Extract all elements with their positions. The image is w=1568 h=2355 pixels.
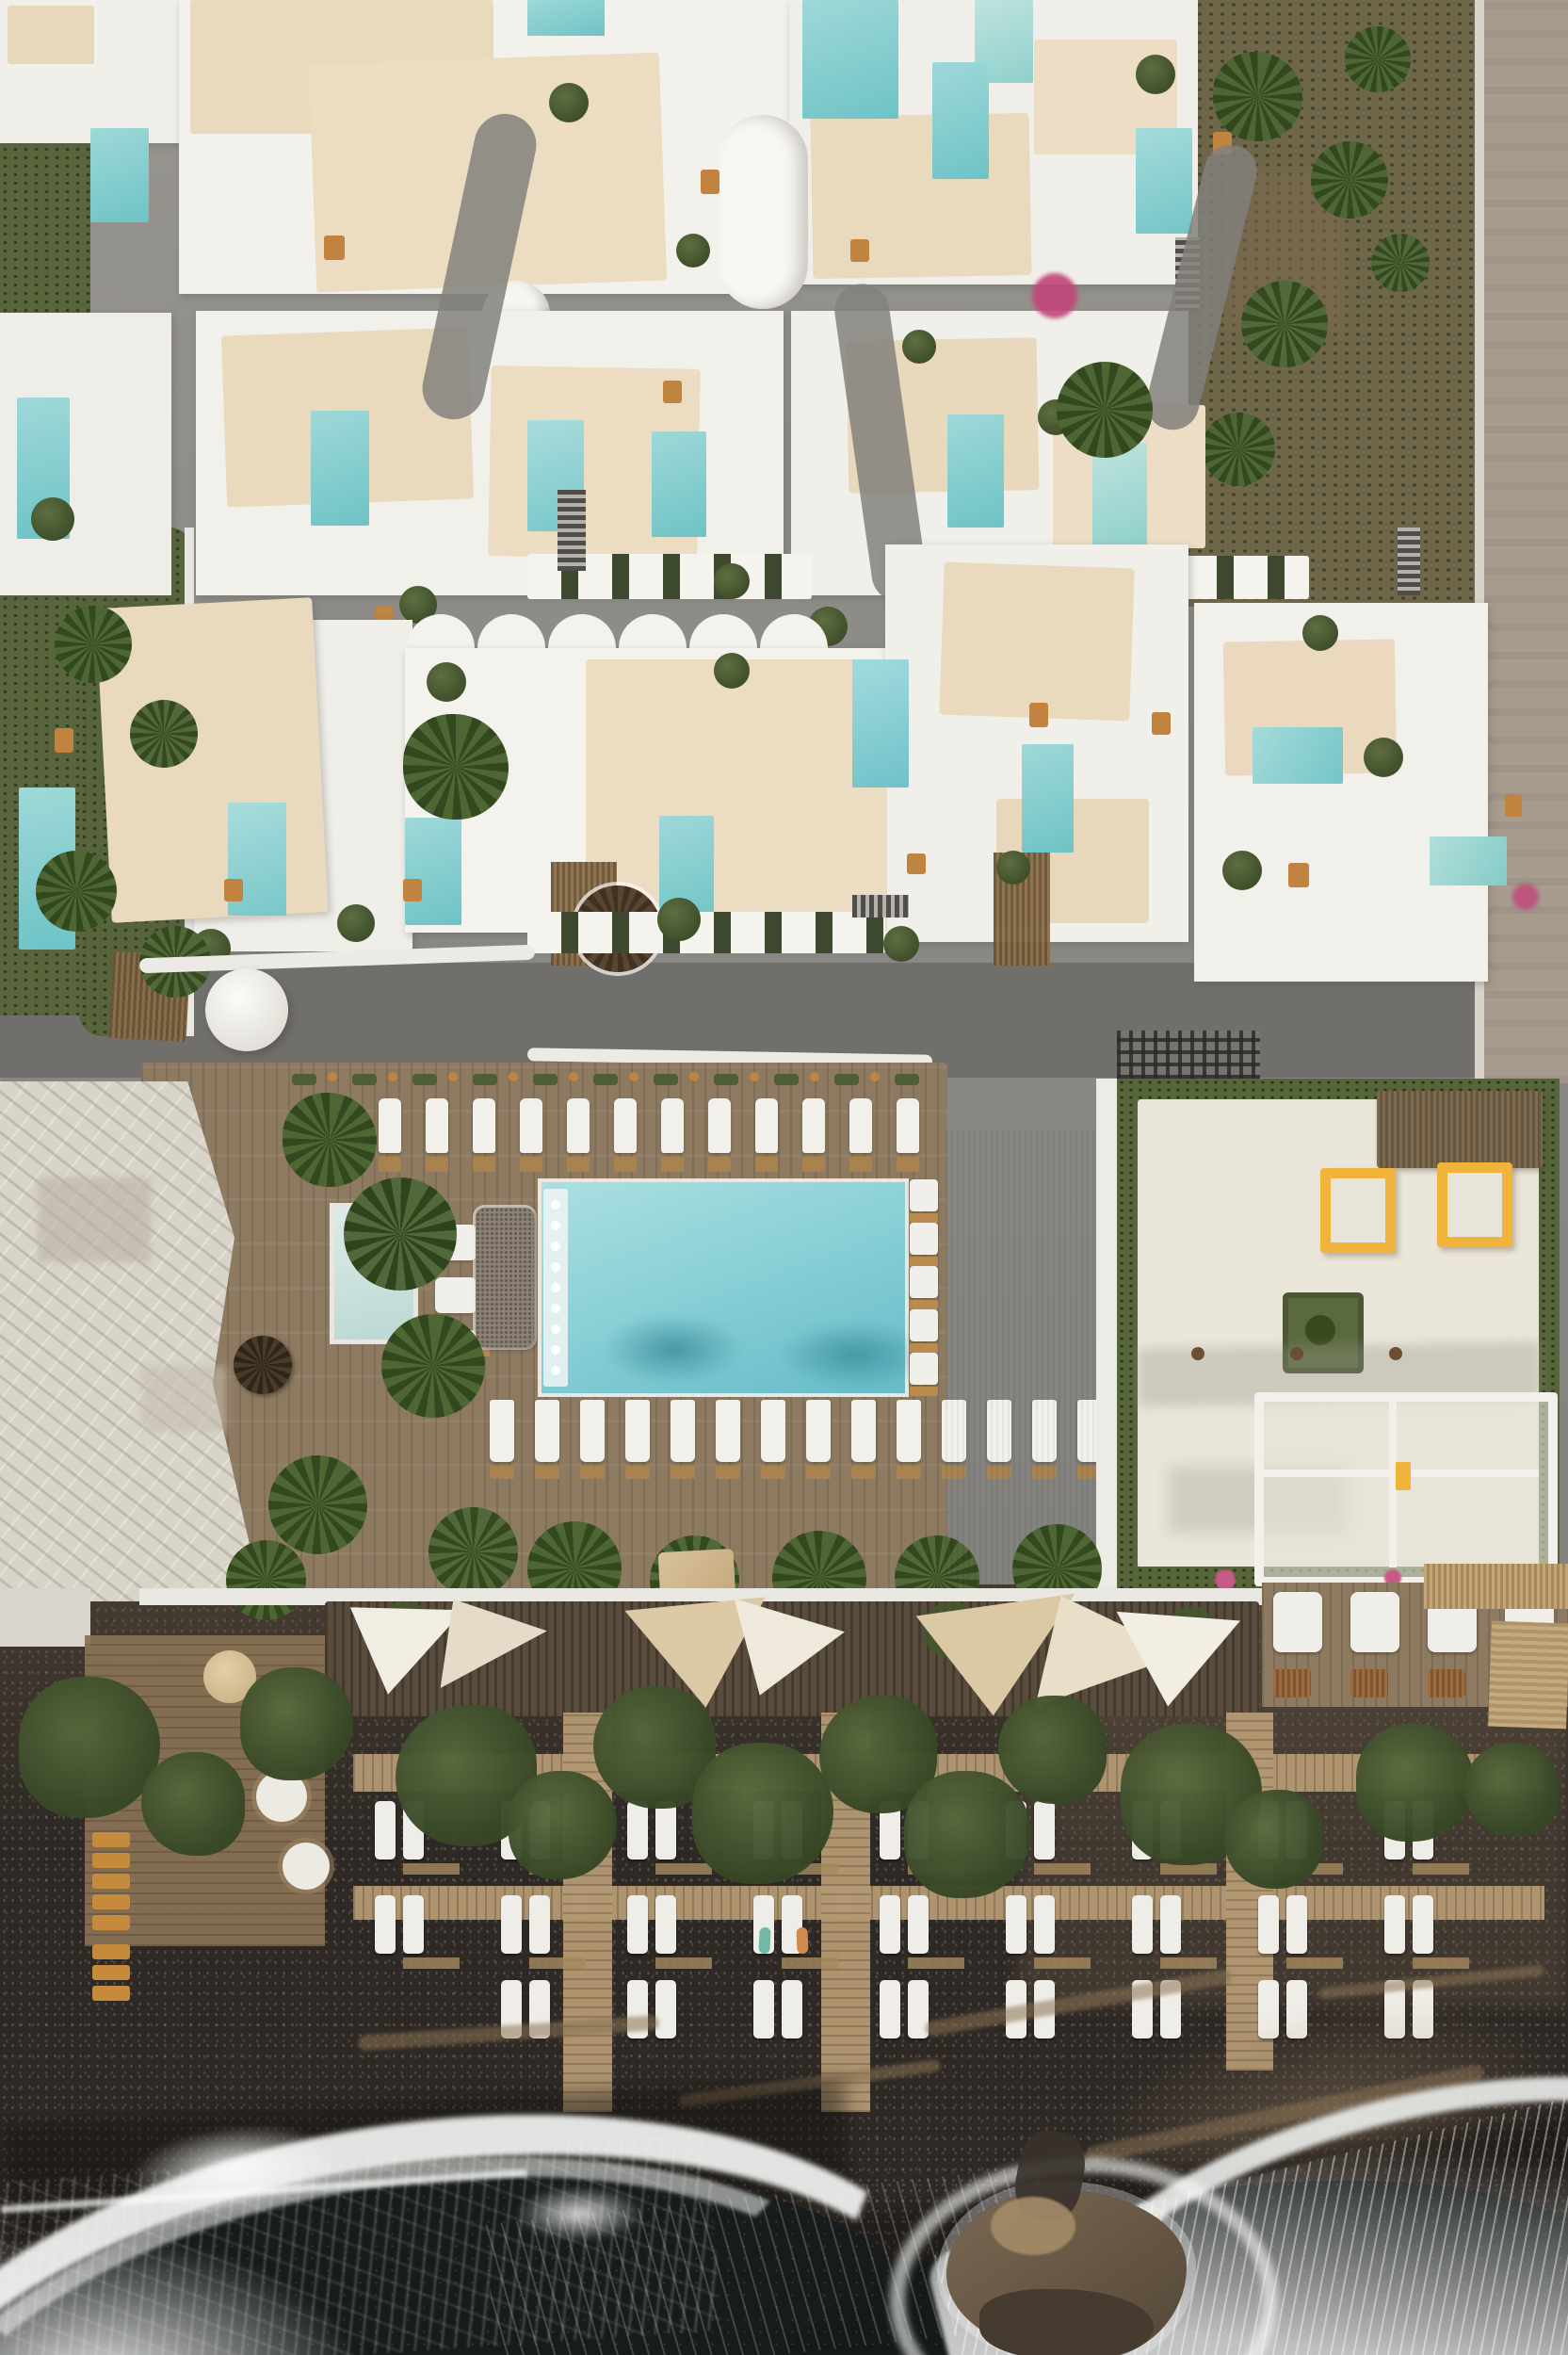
- palm-tree: [403, 714, 509, 820]
- plunge-pool: [1022, 744, 1074, 853]
- garden-palm: [1371, 234, 1430, 292]
- lounger-wood: [567, 1157, 590, 1172]
- plunge-pool: [932, 62, 989, 179]
- lounger-wood: [849, 1157, 872, 1172]
- pool-lounger-top: [473, 1098, 495, 1153]
- stairs: [1398, 528, 1420, 595]
- orange-lounger: [92, 1915, 130, 1930]
- lounger-divider: [655, 1863, 712, 1875]
- planter-row: [352, 1074, 377, 1085]
- plunge-pool: [405, 818, 461, 925]
- arcade: [527, 912, 885, 953]
- pool-lounger-top: [614, 1098, 637, 1153]
- planter-row: [473, 1074, 497, 1085]
- wood-accent: [55, 728, 73, 753]
- planter-row: [654, 1074, 678, 1085]
- planter-dot: [629, 1072, 639, 1081]
- beach-daybed: [1350, 1592, 1399, 1652]
- beach-lounger: [1006, 1895, 1026, 1954]
- lounger-wood: [851, 1466, 876, 1479]
- wicker-square: [1428, 1669, 1465, 1697]
- planter-dot: [328, 1072, 337, 1081]
- planter-row: [593, 1074, 618, 1085]
- terrace-pot: [1191, 1347, 1204, 1360]
- planter-row: [895, 1074, 919, 1085]
- garden-palm: [1241, 281, 1328, 367]
- planter-dot: [870, 1072, 880, 1081]
- lounger-wood: [520, 1157, 542, 1172]
- lounger-wood: [379, 1157, 401, 1172]
- foam-breaker-mid: [513, 2185, 645, 2242]
- beach-tree: [1464, 1743, 1559, 1837]
- daybed: [435, 1277, 477, 1313]
- deck-palm: [381, 1314, 485, 1418]
- wood-accent: [850, 239, 869, 262]
- pool-step-dot: [551, 1324, 560, 1334]
- lounger-wood: [802, 1157, 825, 1172]
- plunge-pool: [1092, 443, 1147, 546]
- lounger-divider: [1034, 1863, 1091, 1875]
- pool-lounger-top: [897, 1098, 919, 1153]
- lounger-wood: [755, 1157, 778, 1172]
- left-white-structure: [0, 1588, 90, 1647]
- shrub: [714, 653, 750, 689]
- lounger-wood: [473, 1157, 495, 1172]
- pool-lounger-right: [910, 1353, 938, 1385]
- pool-lounger-top: [520, 1098, 542, 1153]
- roof-stain: [38, 1177, 151, 1262]
- orange-lounger: [92, 1874, 130, 1889]
- pool-step-dot: [551, 1304, 560, 1313]
- lounger-wood: [614, 1157, 637, 1172]
- orange-lounger: [92, 1832, 130, 1847]
- wood-accent: [1029, 703, 1048, 727]
- beach-lounger: [880, 1895, 900, 1954]
- plunge-pool: [90, 128, 149, 222]
- wood-accent: [1505, 794, 1522, 817]
- wicker-square: [1273, 1669, 1311, 1697]
- plunge-pool: [1430, 836, 1507, 885]
- lounger-divider: [1413, 1863, 1469, 1875]
- lounger-divider: [403, 1863, 460, 1875]
- beach-lounger: [1384, 1895, 1405, 1954]
- pool-lounger-bottom: [716, 1400, 740, 1462]
- terrace-pot: [1389, 1347, 1402, 1360]
- stairs: [852, 895, 909, 918]
- pool-lounger-bottom: [580, 1400, 605, 1462]
- shrub: [31, 497, 74, 541]
- pool-lounger-right: [910, 1179, 938, 1211]
- stairs: [558, 490, 586, 571]
- thatch-strip: [1424, 1564, 1568, 1609]
- skylight-yellow: [1320, 1168, 1396, 1253]
- pool-lounger-bottom: [806, 1400, 831, 1462]
- road-right: [1484, 0, 1568, 1083]
- lounger-divider: [1160, 1957, 1217, 1969]
- rock-cap: [991, 2197, 1075, 2255]
- pool-lounger-bottom: [761, 1400, 785, 1462]
- planter-row: [714, 1074, 738, 1085]
- plunge-pool: [947, 414, 1004, 528]
- wood-accent: [324, 235, 345, 260]
- pool-lounger-bottom: [625, 1400, 650, 1462]
- wicker-square: [1350, 1669, 1388, 1697]
- planter-dot: [388, 1072, 397, 1081]
- lounger-wood: [897, 1466, 921, 1479]
- plunge-pool: [311, 411, 369, 526]
- lounger-wood: [910, 1213, 938, 1223]
- wood-accent: [907, 853, 926, 874]
- plunge-pool: [852, 659, 909, 788]
- pool-lounger-bottom: [897, 1400, 921, 1462]
- plunge-pool: [802, 0, 898, 119]
- planter-row: [774, 1074, 799, 1085]
- beach-tree: [141, 1752, 245, 1856]
- beach-lounger: [1286, 1895, 1307, 1954]
- wood-accent: [1288, 863, 1309, 887]
- lounger-wood: [661, 1157, 684, 1172]
- plunge-pool: [527, 0, 605, 36]
- pool-lounger-top: [379, 1098, 401, 1153]
- yellow-box: [1396, 1462, 1411, 1490]
- beach-lounger: [1413, 1895, 1433, 1954]
- lounger-wood: [761, 1466, 785, 1479]
- beach-lounger: [375, 1801, 396, 1860]
- pool-step-dot: [551, 1345, 560, 1355]
- planter-dot: [569, 1072, 578, 1081]
- pool-lounger-bottom: [490, 1400, 514, 1462]
- lounger-divider: [529, 1957, 586, 1969]
- shrub: [714, 563, 750, 599]
- shrub: [427, 662, 466, 702]
- person-towel-teal: [758, 1927, 770, 1955]
- roof-stain: [141, 1366, 226, 1432]
- beach-lounger: [501, 1895, 522, 1954]
- beach-lounger: [403, 1895, 424, 1954]
- pool-palm-shadow: [603, 1314, 744, 1385]
- pool-lounger-top: [755, 1098, 778, 1153]
- deck-umbrella-dark: [234, 1336, 292, 1394]
- pool-lounger-top: [849, 1098, 872, 1153]
- garden-palm: [1202, 413, 1275, 486]
- lounger-wood: [580, 1466, 605, 1479]
- pool-step-dot: [551, 1262, 560, 1272]
- shrub: [676, 234, 710, 268]
- orange-lounger: [92, 1965, 130, 1980]
- shrub: [1136, 55, 1175, 94]
- planter-row: [412, 1074, 437, 1085]
- pool-lounger-bottom: [851, 1400, 876, 1462]
- beach-lounger: [655, 1801, 676, 1860]
- terrace-planter-bush: [1305, 1315, 1335, 1345]
- lounger-divider: [1034, 1957, 1091, 1969]
- beach-lounger: [1132, 1895, 1153, 1954]
- beach-lounger: [627, 1801, 648, 1860]
- pool-lounger-right: [910, 1266, 938, 1298]
- beach-lounger: [1160, 1895, 1181, 1954]
- deck-palm: [344, 1177, 457, 1291]
- lounger-wood: [910, 1387, 938, 1396]
- orange-lounger: [92, 1853, 130, 1868]
- lounger-wood: [426, 1157, 448, 1172]
- deck-palm: [268, 1455, 367, 1554]
- beach-lounger: [908, 1895, 929, 1954]
- shrub: [1302, 615, 1338, 651]
- terrace-hedge: [1117, 1079, 1138, 1589]
- pool-step-dot: [551, 1283, 560, 1292]
- beach-lounger: [375, 1895, 396, 1954]
- plunge-pool: [1136, 128, 1192, 234]
- lounger-wood: [910, 1300, 938, 1309]
- beach-lounger: [1034, 1895, 1055, 1954]
- roof-beige: [939, 562, 1135, 722]
- deck-palm: [428, 1507, 518, 1597]
- umbrella-dome-white: [205, 968, 288, 1051]
- plunge-pool: [1253, 727, 1343, 784]
- wood-accent: [224, 879, 243, 901]
- lounger-wood: [490, 1466, 514, 1479]
- shrub: [883, 926, 919, 962]
- garden-palm: [1345, 26, 1411, 92]
- shrub: [996, 851, 1030, 885]
- planter-dot: [810, 1072, 819, 1081]
- lounger-wood: [625, 1466, 650, 1479]
- beach-lounger: [1034, 1801, 1055, 1860]
- deck-palm: [283, 1093, 377, 1187]
- deck-palm: [226, 1540, 306, 1620]
- beach-lounger: [782, 1980, 802, 2038]
- garden-palm: [1213, 52, 1302, 141]
- lounger-wood: [910, 1343, 938, 1353]
- palm-tree: [1057, 362, 1153, 458]
- pool-step-dot: [551, 1200, 560, 1210]
- planter-dot: [750, 1072, 759, 1081]
- lounger-divider: [908, 1957, 964, 1969]
- palm-tree: [130, 700, 198, 768]
- lounger-wood: [535, 1466, 559, 1479]
- wood-accent: [701, 170, 719, 194]
- terrace-thatch-roof: [1377, 1091, 1543, 1168]
- wood-accent: [1152, 712, 1171, 735]
- planter-row: [292, 1074, 316, 1085]
- bougainvillea: [1032, 273, 1077, 318]
- planter-row: [533, 1074, 558, 1085]
- pool-lounger-right: [910, 1309, 938, 1341]
- shrub: [549, 83, 589, 122]
- lounger-wood: [897, 1157, 919, 1172]
- roof-beige: [811, 113, 1032, 279]
- pool-lounger-top: [708, 1098, 731, 1153]
- planter-row: [834, 1074, 859, 1085]
- roof-beige: [8, 6, 94, 64]
- beach-lounger: [655, 1980, 676, 2038]
- pool-step-dot: [551, 1221, 560, 1230]
- shrub: [1222, 851, 1262, 890]
- shrub: [337, 904, 375, 942]
- lounger-wood: [708, 1157, 731, 1172]
- wood-accent: [403, 879, 422, 901]
- person-towel-orange: [797, 1927, 809, 1954]
- thatch-bar-roof: [476, 1208, 534, 1347]
- plunge-pool: [652, 431, 706, 537]
- round-daybed: [283, 1843, 330, 1890]
- pool-lounger-top: [661, 1098, 684, 1153]
- shrub: [1364, 738, 1403, 777]
- skylight-yellow: [1437, 1162, 1512, 1247]
- lounger-divider: [1413, 1957, 1469, 1969]
- bougainvillea: [1215, 1569, 1236, 1590]
- lounger-wood: [716, 1466, 740, 1479]
- foam-corner-blob: [0, 2233, 367, 2355]
- shrub: [657, 898, 701, 941]
- wood-accent: [663, 381, 682, 403]
- pool-lounger-top: [567, 1098, 590, 1153]
- lounger-divider: [782, 1957, 838, 1969]
- beach-lounger: [753, 1980, 774, 2038]
- beach-tree: [1224, 1790, 1323, 1889]
- pool-lounger-top: [802, 1098, 825, 1153]
- shrub: [902, 330, 936, 364]
- pool-step-dot: [551, 1242, 560, 1251]
- terrace-pot: [1290, 1347, 1303, 1360]
- lounger-divider: [403, 1957, 460, 1969]
- lounger-wood: [671, 1466, 695, 1479]
- bougainvillea: [1512, 884, 1539, 910]
- palm-tree: [36, 851, 117, 932]
- planter-dot: [448, 1072, 458, 1081]
- orange-lounger: [92, 1986, 130, 2001]
- beach-tree: [998, 1696, 1107, 1804]
- pool-lounger-right: [910, 1223, 938, 1255]
- barrel-roof: [718, 115, 808, 309]
- lounger-wood: [806, 1466, 831, 1479]
- lounger-divider: [655, 1957, 712, 1969]
- pool-lounger-bottom: [671, 1400, 695, 1462]
- beach-lounger: [627, 1895, 648, 1954]
- beach-daybed: [1273, 1592, 1322, 1652]
- pool-lounger-top: [426, 1098, 448, 1153]
- planter-dot: [689, 1072, 699, 1081]
- palm-tree: [55, 606, 132, 683]
- beach-lounger: [655, 1895, 676, 1954]
- orange-lounger: [92, 1894, 130, 1909]
- beach-lounger: [529, 1895, 550, 1954]
- orange-lounger: [92, 1944, 130, 1959]
- planter-dot: [509, 1072, 518, 1081]
- cabana-walkway: [1096, 1079, 1117, 1600]
- garden-palm: [1311, 141, 1388, 219]
- straw-panels: [1488, 1621, 1568, 1730]
- lounger-wood: [910, 1257, 938, 1266]
- pool-step-dot: [551, 1366, 560, 1375]
- aerial-resort-photo: [0, 0, 1568, 2355]
- pool-lounger-bottom: [535, 1400, 559, 1462]
- beach-lounger: [1258, 1895, 1279, 1954]
- beach-lounger: [880, 1980, 900, 2038]
- lounger-divider: [1286, 1957, 1343, 1969]
